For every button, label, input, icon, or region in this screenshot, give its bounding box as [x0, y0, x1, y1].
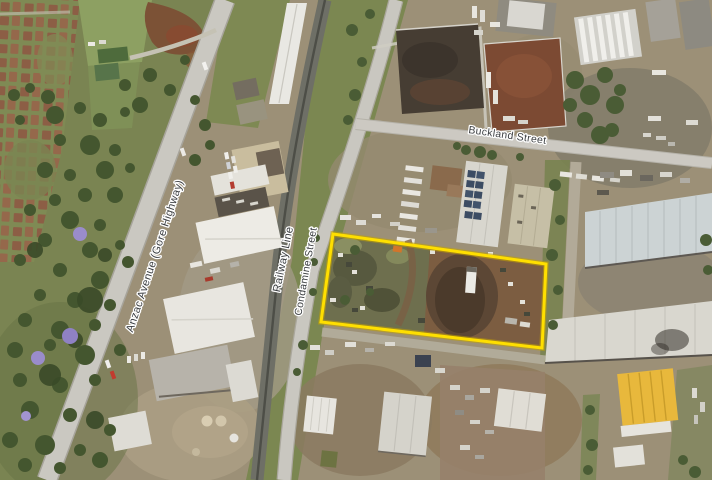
skylight-warehouse: [574, 9, 642, 65]
aerial-map-canvas: Anzac Avenue (Gore Highway) Railway Line…: [0, 0, 712, 480]
dark-paddock: [396, 24, 484, 114]
jacaranda-tree: [73, 227, 87, 241]
yellow-warehouse: [615, 368, 679, 437]
aerial-map[interactable]: Anzac Avenue (Gore Highway) Railway Line…: [0, 0, 712, 480]
red-dirt-lot: [484, 38, 566, 132]
